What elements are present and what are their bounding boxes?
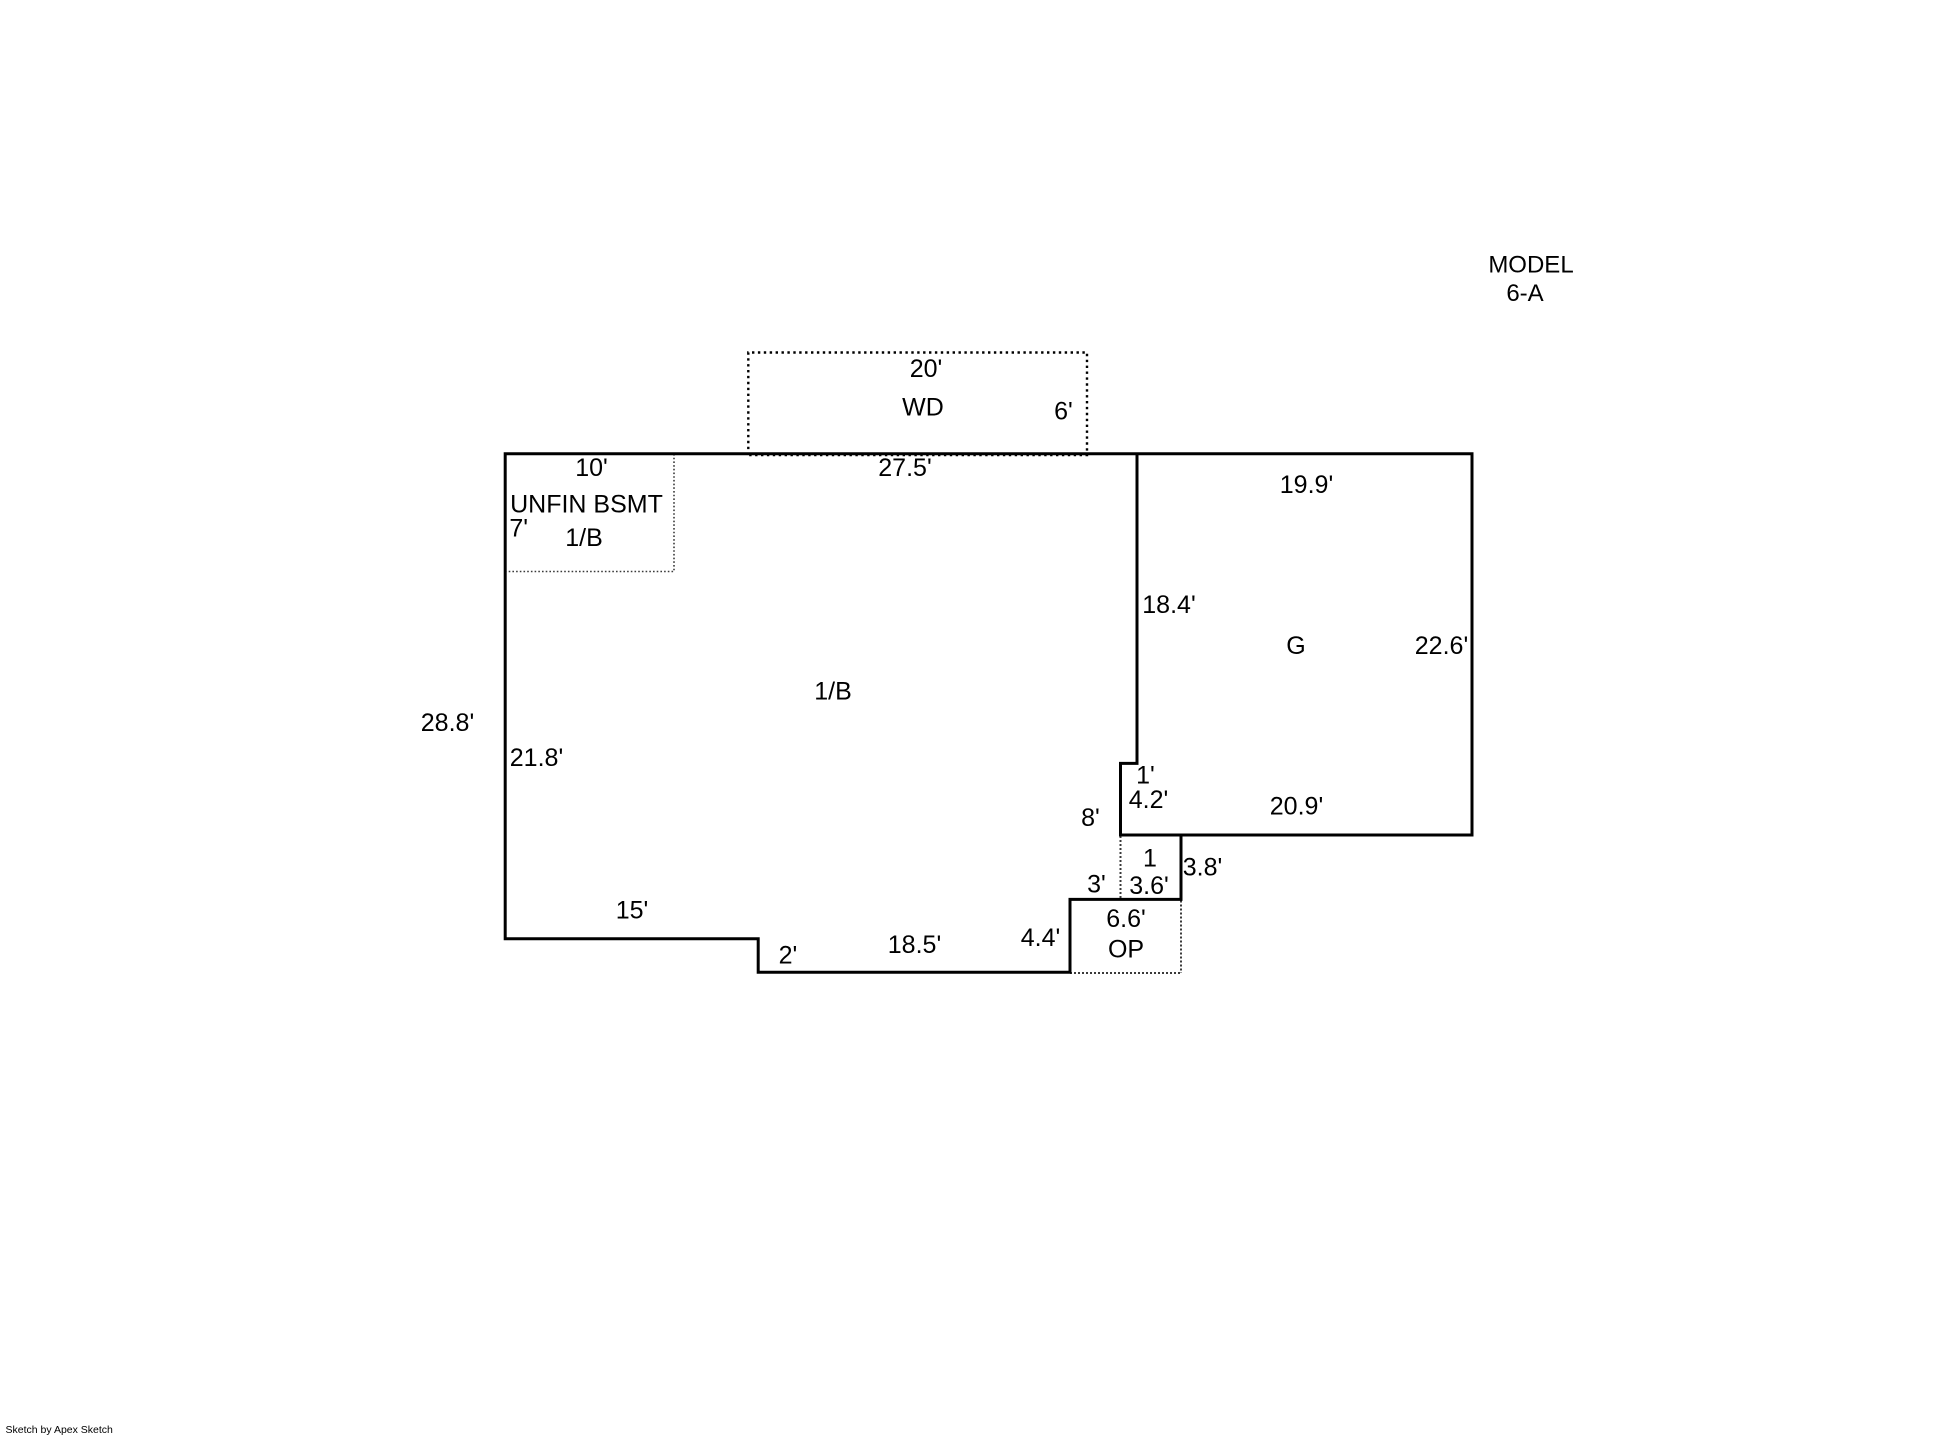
svg-text:G: G	[1286, 632, 1305, 660]
svg-text:MODEL: MODEL	[1488, 252, 1573, 279]
svg-text:4.4': 4.4'	[1021, 924, 1061, 952]
svg-text:27.5': 27.5'	[878, 454, 931, 482]
svg-text:8': 8'	[1081, 804, 1100, 832]
svg-text:6-A: 6-A	[1506, 280, 1543, 307]
svg-text:6.6': 6.6'	[1106, 905, 1146, 933]
svg-text:1/B: 1/B	[814, 678, 852, 706]
svg-text:7': 7'	[509, 515, 528, 543]
svg-text:20': 20'	[910, 355, 943, 383]
svg-text:15': 15'	[616, 897, 649, 925]
svg-text:4.2': 4.2'	[1129, 786, 1169, 814]
svg-text:21.8': 21.8'	[510, 744, 563, 772]
svg-text:1/B: 1/B	[565, 524, 603, 552]
svg-text:2': 2'	[779, 942, 798, 970]
svg-text:UNFIN BSMT: UNFIN BSMT	[510, 491, 663, 519]
svg-text:18.4': 18.4'	[1142, 591, 1195, 619]
svg-text:20.9': 20.9'	[1270, 793, 1323, 821]
svg-text:3.6': 3.6'	[1129, 872, 1169, 900]
svg-text:WD: WD	[902, 394, 944, 422]
svg-text:Sketch by Apex Sketch: Sketch by Apex Sketch	[6, 1424, 114, 1436]
svg-text:19.9': 19.9'	[1280, 471, 1333, 499]
svg-text:22.6': 22.6'	[1415, 632, 1468, 660]
svg-text:10': 10'	[575, 454, 608, 482]
svg-text:28.8': 28.8'	[421, 709, 474, 737]
svg-text:1: 1	[1143, 845, 1157, 873]
svg-text:6': 6'	[1054, 398, 1073, 426]
svg-text:OP: OP	[1108, 936, 1144, 964]
svg-text:3.8': 3.8'	[1183, 854, 1223, 882]
svg-text:18.5': 18.5'	[888, 931, 941, 959]
svg-text:3': 3'	[1087, 871, 1106, 899]
